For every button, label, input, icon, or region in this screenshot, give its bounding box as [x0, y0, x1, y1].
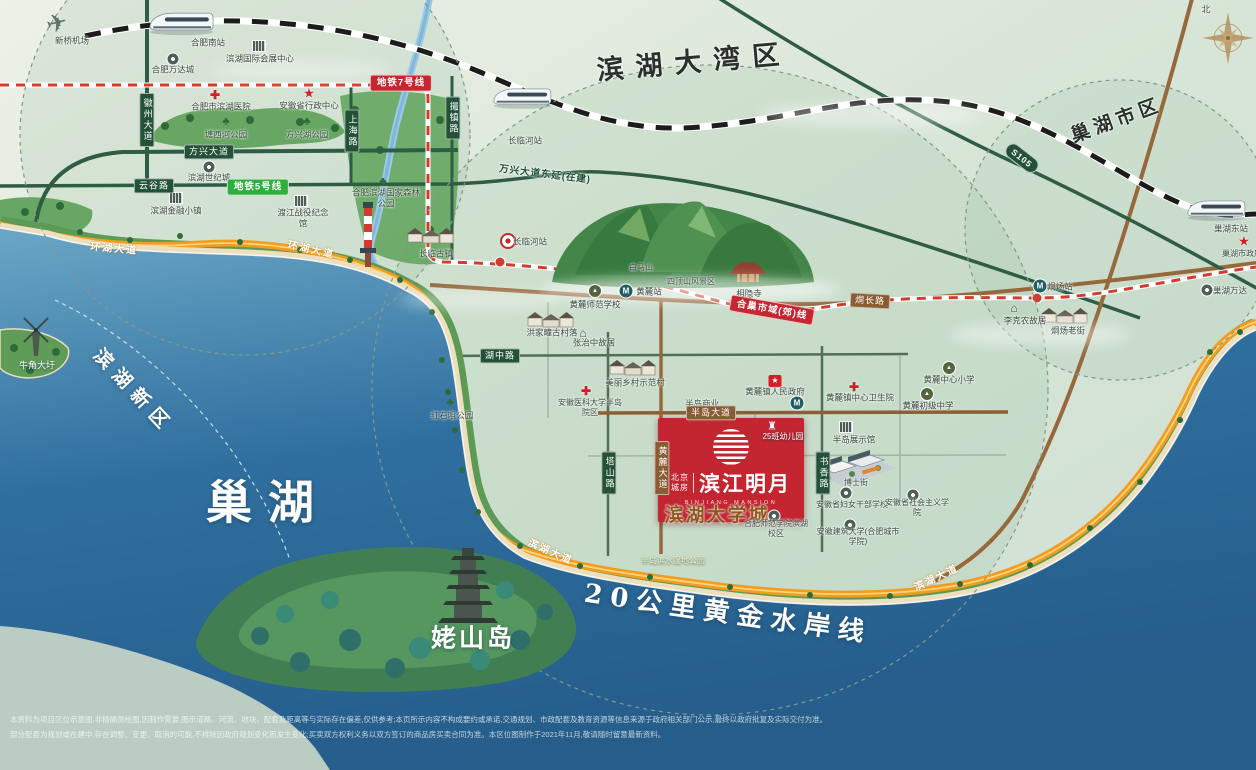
developer-name: 北京 城房 — [671, 473, 694, 492]
map-artwork — [0, 0, 1256, 770]
disclaimer-line-1: 本资料为项目区位示意图,非精确测绘图,因制作需要,图示道路、河流、地块、配套及距… — [10, 714, 1180, 725]
project-name: 滨江明月 — [699, 468, 791, 498]
developer-name-line2: 城房 — [671, 483, 689, 493]
project-binjiang-mingyue: 北京 城房 滨江明月 BINJIANG MANSION — [658, 418, 804, 522]
disclaimer-line-2: 部分配套为规划或在建中,存在调整、变更、取消的可能,不排除因政府规划变化而发生变… — [10, 729, 1180, 740]
promotional-location-map: 北京 城房 滨江明月 BINJIANG MANSION ✈✚★♣♣♣♣M▲⌂✚★… — [0, 0, 1256, 770]
developer-name-line1: 北京 — [671, 473, 689, 483]
project-sun-logo-icon — [713, 429, 749, 465]
project-name-en: BINJIANG MANSION — [685, 500, 778, 506]
